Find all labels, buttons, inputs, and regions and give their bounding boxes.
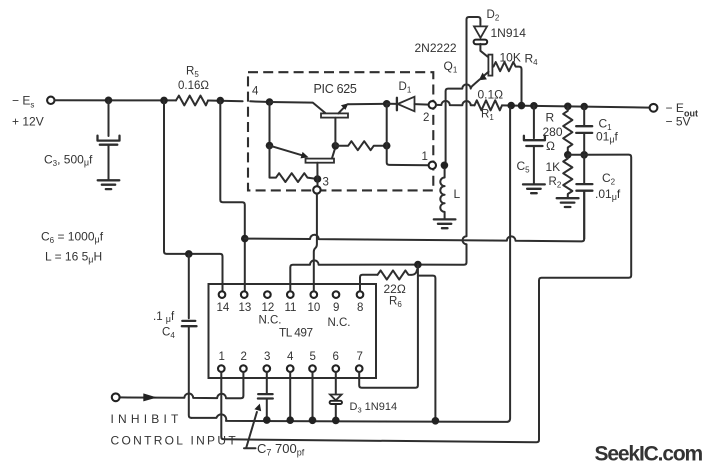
svg-text:− E: − E [666, 101, 684, 115]
svg-text:13: 13 [239, 302, 252, 314]
svg-text:Ω: Ω [546, 139, 555, 153]
svg-text:4: 4 [287, 351, 294, 363]
svg-text:1: 1 [422, 151, 428, 163]
svg-text:.01μf: .01μf [595, 187, 621, 202]
svg-text:L = 16 5μH: L = 16 5μH [45, 250, 102, 265]
svg-text:14: 14 [217, 302, 230, 314]
svg-text:9: 9 [333, 302, 339, 314]
svg-text:22Ω: 22Ω [384, 282, 406, 296]
svg-text:10: 10 [308, 302, 321, 314]
svg-text:L: L [454, 187, 461, 201]
svg-text:2N2222: 2N2222 [415, 41, 457, 55]
svg-text:5: 5 [310, 351, 316, 363]
svg-text:.1 μf: .1 μf [153, 311, 175, 324]
svg-text:12: 12 [262, 302, 275, 314]
svg-text:1: 1 [219, 351, 225, 363]
svg-text:N.C.: N.C. [328, 317, 351, 329]
svg-text:1K: 1K [546, 160, 561, 174]
svg-text:7: 7 [357, 351, 363, 363]
svg-text:8: 8 [357, 302, 363, 314]
svg-text:CONTROL INPUT: CONTROL INPUT [111, 434, 238, 448]
svg-text:R: R [546, 111, 555, 125]
svg-text:TL 497: TL 497 [279, 326, 313, 340]
svg-text:4: 4 [252, 86, 259, 98]
svg-text:− 5V: − 5V [666, 115, 691, 129]
svg-text:INHIBIT: INHIBIT [111, 412, 183, 426]
svg-text:10K: 10K [500, 51, 521, 65]
svg-text:2: 2 [241, 351, 247, 363]
svg-text:PIC 625: PIC 625 [314, 82, 357, 96]
svg-text:+ 12V: + 12V [12, 115, 44, 129]
svg-text:D3 1N914: D3 1N914 [350, 401, 398, 415]
svg-text:2: 2 [423, 112, 429, 124]
svg-text:280: 280 [543, 125, 563, 139]
svg-text:0.1Ω: 0.1Ω [478, 88, 504, 102]
svg-text:3: 3 [323, 177, 329, 189]
svg-text:01μf: 01μf [596, 130, 619, 145]
svg-text:SeekIC.com: SeekIC.com [595, 443, 703, 466]
svg-text:11: 11 [285, 302, 297, 314]
svg-text:0.16Ω: 0.16Ω [178, 80, 209, 92]
svg-text:6: 6 [333, 351, 339, 363]
svg-text:3: 3 [264, 351, 270, 363]
svg-text:1N914: 1N914 [491, 26, 527, 40]
